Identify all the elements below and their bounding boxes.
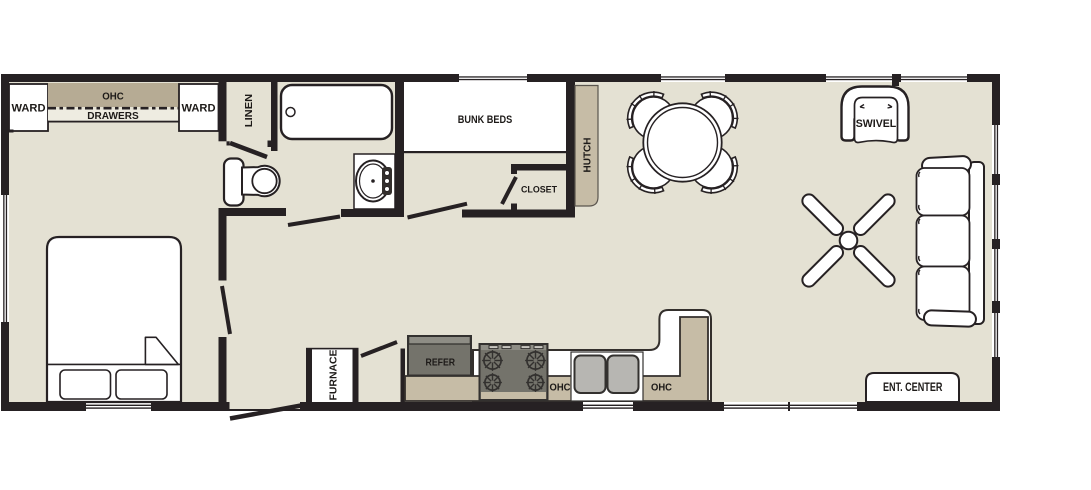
svg-text:OHC: OHC — [102, 91, 124, 103]
svg-text:HUTCH: HUTCH — [581, 138, 593, 173]
svg-text:OHC: OHC — [550, 382, 571, 394]
svg-text:DRAWERS: DRAWERS — [87, 110, 139, 122]
svg-text:CLOSET: CLOSET — [521, 185, 557, 195]
svg-text:WARD: WARD — [182, 103, 216, 115]
svg-text:LINEN: LINEN — [243, 94, 255, 128]
svg-text:OHC: OHC — [651, 382, 672, 394]
svg-text:FURNACE: FURNACE — [328, 349, 339, 400]
svg-text:SWIVEL: SWIVEL — [856, 118, 897, 130]
svg-text:BUNK BEDS: BUNK BEDS — [458, 114, 513, 126]
svg-text:WARD: WARD — [12, 103, 46, 115]
svg-text:ENT. CENTER: ENT. CENTER — [883, 380, 943, 394]
svg-text:REFER: REFER — [426, 358, 456, 369]
